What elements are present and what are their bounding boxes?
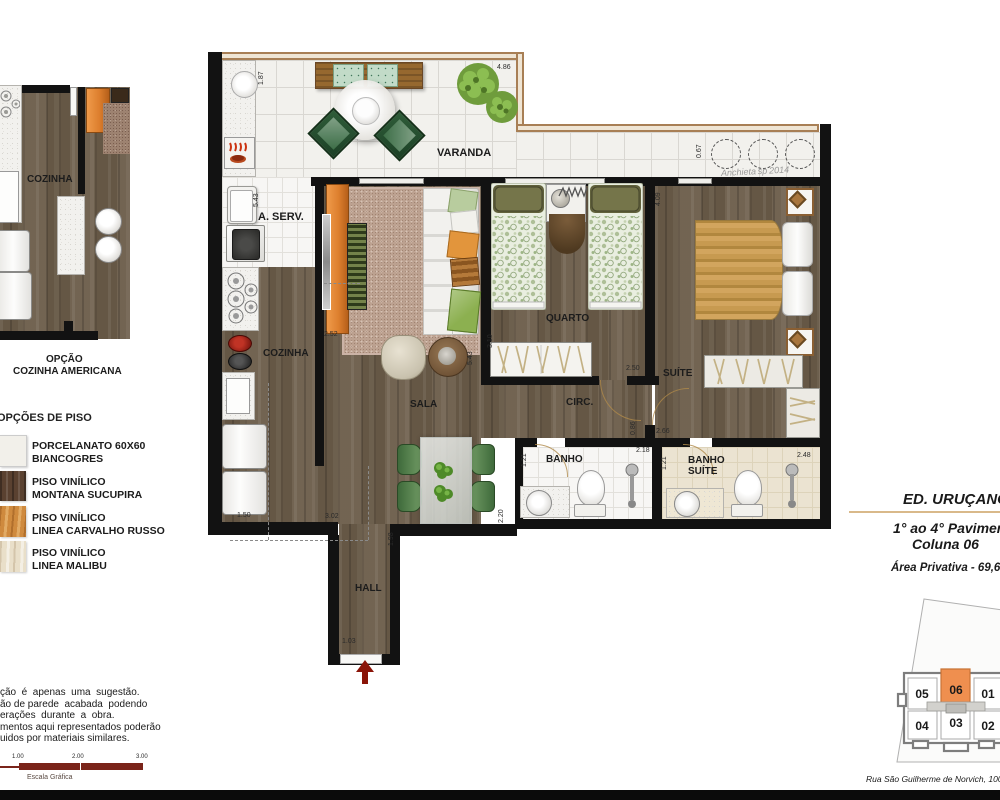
- svg-text:05: 05: [915, 687, 929, 701]
- svg-text:03: 03: [949, 716, 963, 730]
- svg-text:02: 02: [981, 719, 995, 733]
- svg-text:06: 06: [949, 683, 963, 697]
- svg-text:04: 04: [915, 719, 929, 733]
- svg-text:01: 01: [981, 687, 995, 701]
